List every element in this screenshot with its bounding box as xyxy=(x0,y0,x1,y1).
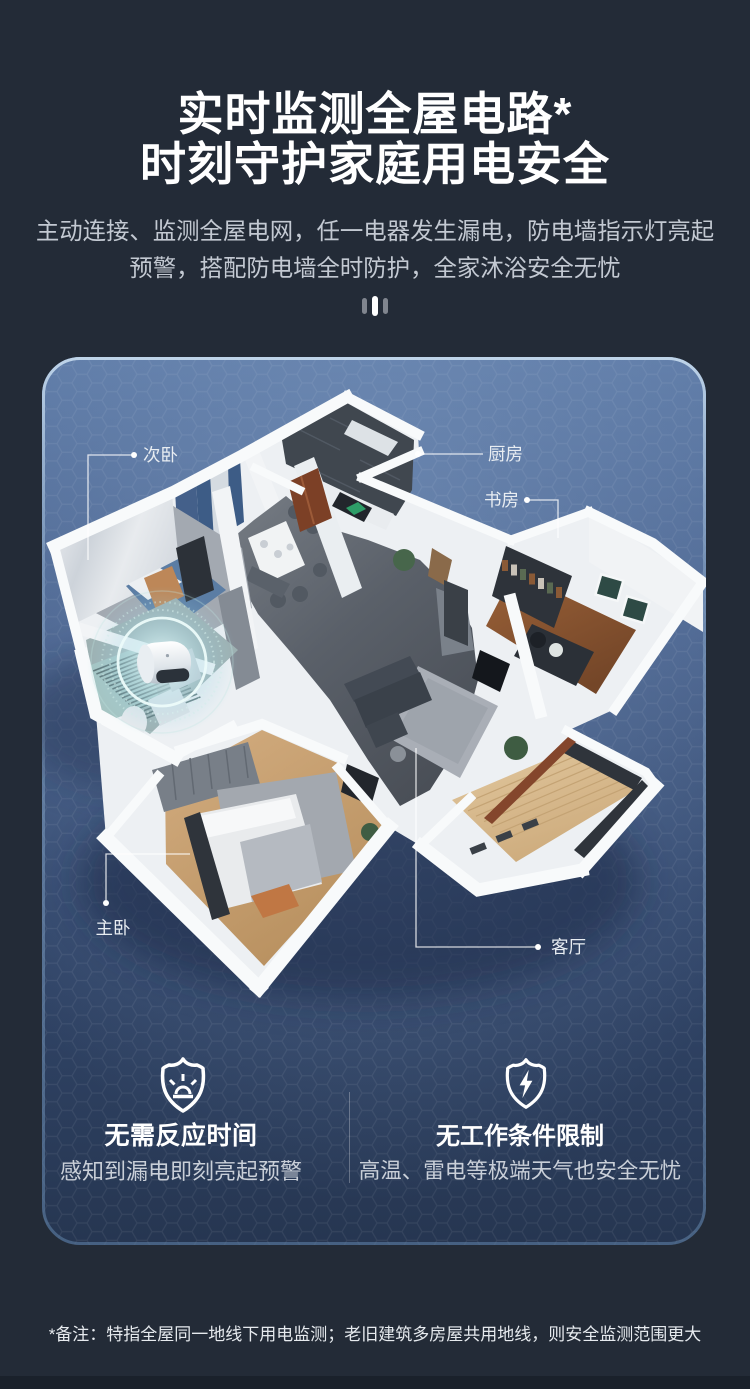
svg-text:客厅: 客厅 xyxy=(551,937,586,957)
svg-text:主卧: 主卧 xyxy=(96,918,131,938)
svg-text:次卧: 次卧 xyxy=(143,445,178,465)
svg-text:厨房: 厨房 xyxy=(488,444,523,464)
svg-text:书房: 书房 xyxy=(484,490,519,510)
